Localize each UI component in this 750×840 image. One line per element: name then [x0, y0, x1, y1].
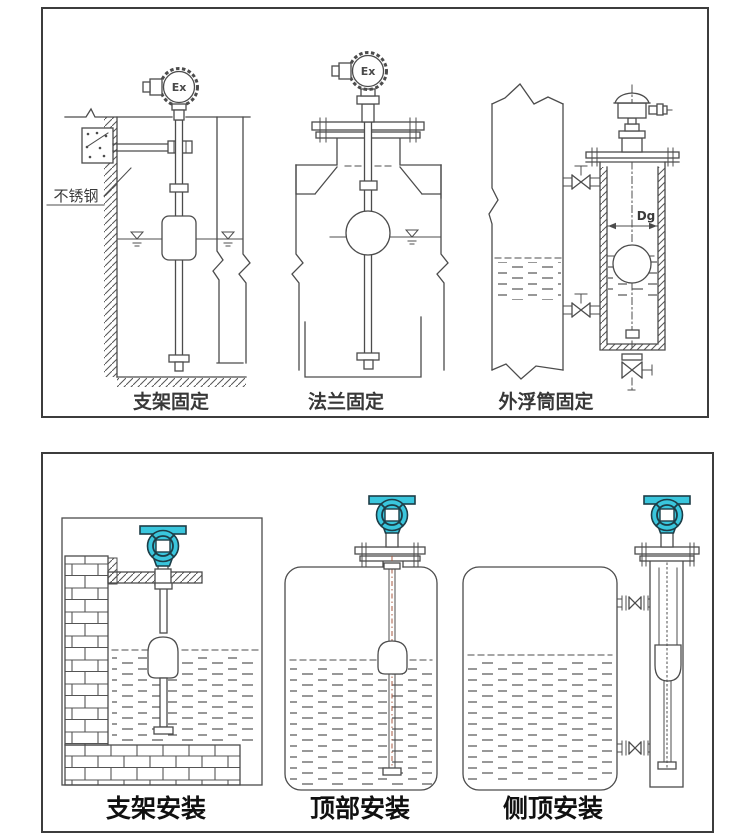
rod-end-stop — [169, 355, 189, 371]
page-canvas: Ex 不锈钢 支架固定 — [0, 0, 750, 840]
stainless-steel-annotation: 不锈钢 — [47, 168, 131, 205]
sensor-rod — [160, 585, 167, 633]
upper-connection-valve-icon — [617, 596, 650, 610]
water — [468, 659, 612, 783]
rod-collar — [155, 583, 172, 589]
tank-floor — [305, 317, 421, 377]
vessel-walls — [489, 104, 563, 370]
vessel-top-break — [492, 84, 563, 104]
rod-collar — [360, 181, 377, 190]
drawing-bracket-fixing: Ex 不锈钢 支架固定 — [47, 69, 250, 414]
drain-valve-icon — [622, 354, 652, 392]
ground-hatching — [117, 378, 246, 387]
float-ball — [613, 245, 651, 283]
drawing-external-chamber-fixing: Dg 外浮筒固定 — [489, 84, 679, 413]
teal-transmitter-head-icon — [140, 526, 186, 575]
drawing-flange-fixing: Ex 法兰固定 — [292, 53, 448, 414]
caption-flange-fixing: 法兰固定 — [308, 390, 384, 413]
drawing-bracket-installation: 支架安装 — [62, 518, 262, 823]
water — [290, 664, 432, 786]
caption-top-installation: 顶部安装 — [310, 794, 410, 823]
teal-transmitter-head-icon — [369, 496, 415, 547]
lower-connection-valve-icon — [617, 741, 650, 755]
drawing-top-installation: 顶部安装 — [285, 496, 437, 823]
display-window — [660, 509, 674, 521]
float-body — [378, 641, 407, 674]
stainless-steel-label: 不锈钢 — [53, 187, 98, 205]
brick-floor — [65, 745, 240, 785]
top-edge-line — [65, 109, 250, 117]
transmitter-head-icon — [614, 85, 672, 152]
teal-transmitter-head-icon — [644, 496, 690, 547]
drawing-side-top-installation: 侧顶安装 — [463, 496, 699, 823]
rod-end-stop — [357, 353, 379, 369]
ex-transmitter-head-icon: Ex — [332, 53, 387, 123]
water — [112, 654, 258, 742]
float-body — [162, 216, 196, 260]
tank-wall-break — [213, 117, 250, 363]
display-window — [385, 509, 399, 521]
caption-bracket-installation: 支架安装 — [106, 794, 206, 823]
display-window — [156, 540, 170, 552]
vessel-bottom-break — [492, 364, 563, 379]
caption-external-chamber-fixing: 外浮筒固定 — [498, 390, 593, 413]
sensor-rod-lower — [160, 678, 167, 727]
lower-valve-icon — [563, 294, 600, 317]
rod-end-plate — [154, 727, 173, 734]
brick-wall — [65, 556, 108, 745]
vessel-liquid — [495, 262, 561, 300]
upper-valve-icon — [563, 166, 600, 189]
rod-collar — [626, 330, 639, 338]
ex-marking: Ex — [172, 81, 187, 94]
rod-collar — [384, 563, 400, 569]
ex-marking: Ex — [361, 65, 376, 78]
float-ball — [346, 211, 390, 255]
rod-end-plate — [383, 768, 401, 775]
caption-side-top-installation: 侧顶安装 — [503, 794, 603, 823]
float-body — [148, 637, 178, 678]
float-body — [655, 645, 681, 681]
dg-label: Dg — [637, 209, 656, 223]
installation-diagrams: Ex 不锈钢 支架固定 — [0, 0, 750, 840]
ex-transmitter-head-icon: Ex — [143, 69, 198, 121]
caption-bracket-fixing: 支架固定 — [132, 390, 209, 413]
rod-collar — [170, 184, 188, 192]
